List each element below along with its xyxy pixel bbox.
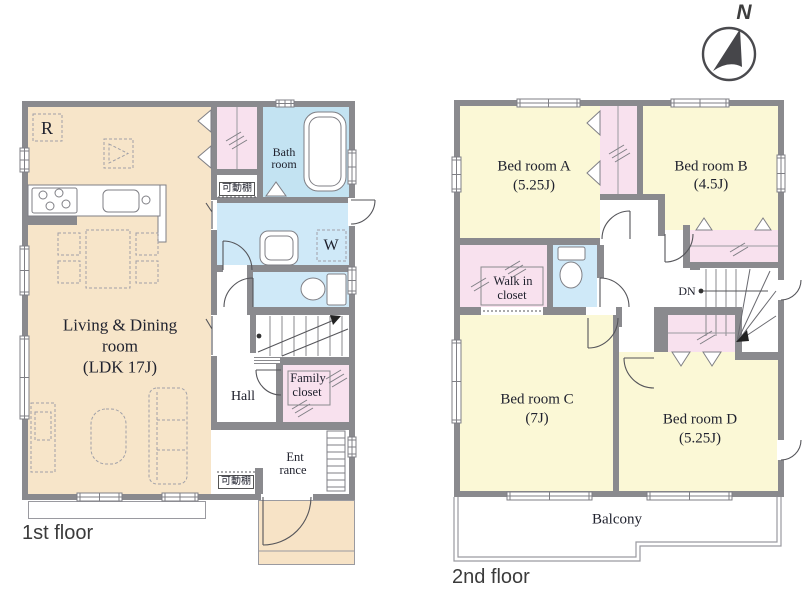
first-floor-label: 1st floor xyxy=(22,522,93,545)
living-room-label: Living & Dining xyxy=(63,317,177,334)
window xyxy=(77,493,122,501)
dining-table xyxy=(86,230,130,288)
window xyxy=(348,267,356,294)
window xyxy=(777,155,785,192)
shoe-cabinet xyxy=(327,431,345,491)
window xyxy=(276,100,294,107)
window xyxy=(20,148,29,172)
shelf-lower-label: 可動棚 xyxy=(218,475,254,489)
furniture xyxy=(31,114,346,484)
bedroom-a-size: (5.25J) xyxy=(513,179,555,194)
window xyxy=(452,340,461,423)
window xyxy=(671,99,729,107)
living-room-size: (LDK 17J) xyxy=(83,359,157,376)
shelf-upper-label: 可動棚 xyxy=(219,182,255,196)
bedroom-a-label: Bed room A xyxy=(497,160,570,175)
wic-label: Walk in xyxy=(494,275,533,288)
bedroom-d-label: Bed room D xyxy=(663,413,737,428)
wash-basin xyxy=(260,231,298,265)
family-closet-label2: closet xyxy=(292,386,321,399)
sofa xyxy=(149,388,187,484)
entrance-label2: rance xyxy=(279,464,306,477)
window xyxy=(20,336,29,419)
north-label: N xyxy=(736,1,751,25)
bathtub xyxy=(304,112,346,191)
wic-label2: closet xyxy=(497,289,526,302)
stairs-1f xyxy=(254,315,348,364)
second-floor-label: 2nd floor xyxy=(452,566,530,589)
kitchen-counter xyxy=(28,185,166,242)
balcony-label: Balcony xyxy=(592,513,642,528)
bedroom-b-size: (4.5J) xyxy=(694,178,729,193)
window xyxy=(20,246,29,295)
window xyxy=(647,492,732,500)
down-label: DN xyxy=(678,285,695,297)
hall-label: Hall xyxy=(231,390,255,404)
window xyxy=(348,437,356,457)
sliding-door-marks xyxy=(206,201,212,355)
bath-folding-door-icon xyxy=(266,182,286,196)
floor-plan: Living & Dining room (LDK 17J) Bath room… xyxy=(0,0,808,593)
bathroom-label2: room xyxy=(271,158,296,170)
entrance-label: Ent xyxy=(286,451,303,464)
balcony xyxy=(454,497,781,561)
toilet-fixture-2f xyxy=(558,247,585,288)
window xyxy=(162,493,198,501)
toilet-fixture-1f xyxy=(301,274,346,305)
bedroom-c-size: (7J) xyxy=(525,412,548,427)
bedroom-c-label: Bed room C xyxy=(500,393,573,408)
fridge-label: R xyxy=(41,119,53,137)
bedroom-b-label: Bed room B xyxy=(674,160,747,175)
family-closet-label: Family xyxy=(290,372,325,385)
living-room-label2: room xyxy=(102,338,138,355)
window xyxy=(452,157,461,192)
coffee-table xyxy=(91,409,126,464)
window xyxy=(507,492,592,500)
washer-label: W xyxy=(323,238,338,254)
compass-icon xyxy=(703,28,755,80)
window xyxy=(348,150,356,184)
bedroom-d-size: (5.25J) xyxy=(679,432,721,447)
window xyxy=(517,99,580,107)
stairs-2f xyxy=(699,269,776,342)
